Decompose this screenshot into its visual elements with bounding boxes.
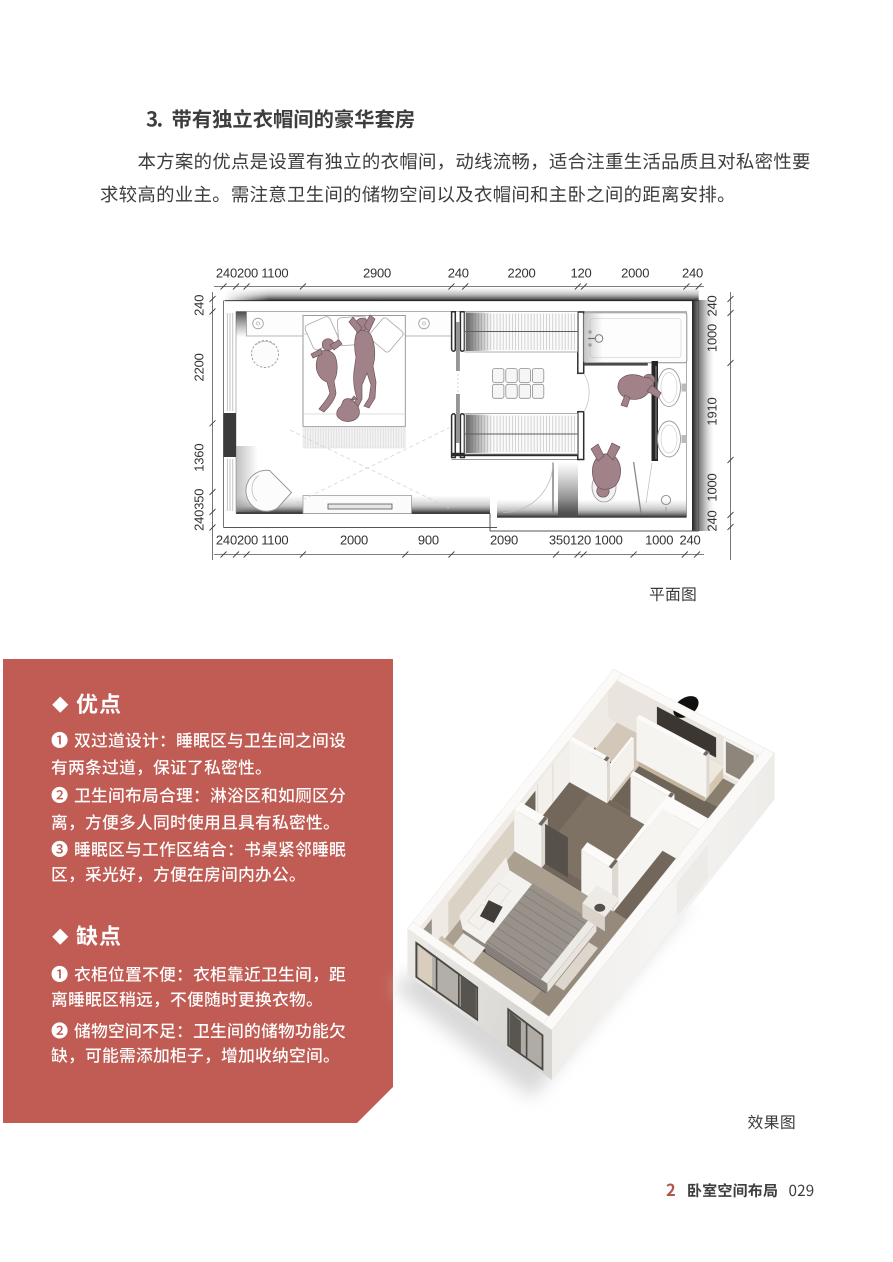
svg-text:240: 240 (705, 510, 720, 531)
svg-text:350120: 350120 (549, 533, 591, 548)
svg-text:2000: 2000 (621, 266, 649, 281)
svg-text:2200: 2200 (507, 266, 535, 281)
svg-text:2200: 2200 (192, 353, 207, 381)
svg-text:240: 240 (448, 266, 469, 281)
svg-text:1910: 1910 (705, 397, 720, 425)
svg-text:1000: 1000 (595, 533, 623, 548)
svg-text:240: 240 (682, 266, 703, 281)
svg-text:1000: 1000 (705, 324, 720, 352)
svg-text:240200: 240200 (216, 266, 258, 281)
svg-text:1100: 1100 (261, 266, 288, 281)
svg-text:900: 900 (418, 533, 439, 548)
svg-text:240350: 240350 (192, 489, 207, 531)
svg-text:240: 240 (192, 295, 207, 316)
svg-text:240200: 240200 (216, 533, 258, 548)
svg-text:120: 120 (570, 266, 591, 281)
svg-text:2000: 2000 (340, 533, 368, 548)
svg-text:240: 240 (679, 533, 700, 548)
svg-text:1360: 1360 (192, 444, 207, 472)
svg-text:2900: 2900 (363, 266, 391, 281)
svg-text:1000: 1000 (705, 473, 720, 501)
svg-text:1100: 1100 (261, 533, 288, 548)
svg-text:1000: 1000 (645, 533, 673, 548)
svg-text:240: 240 (705, 295, 720, 316)
svg-text:2090: 2090 (490, 533, 518, 548)
